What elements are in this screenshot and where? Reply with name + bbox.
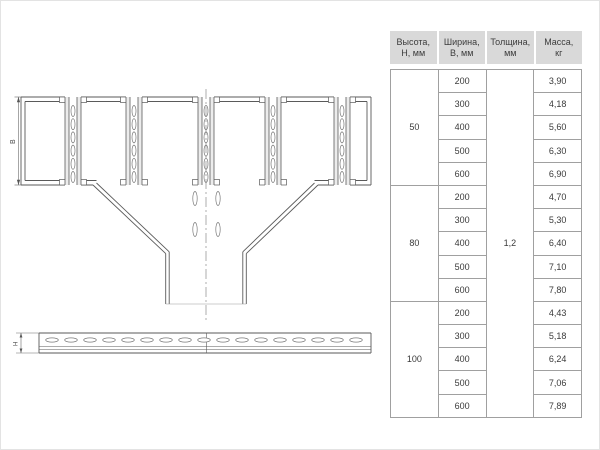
profile-slot <box>141 338 154 342</box>
profile-slot <box>103 338 116 342</box>
profile-slot <box>122 338 135 342</box>
mass-cell: 3,90 <box>534 70 582 93</box>
column-header-width: Ширина, В, мм <box>439 31 486 64</box>
header-line: В, мм <box>450 48 473 59</box>
spec-table-body: 502001,23,903004,184005,605006,306006,90… <box>390 69 582 418</box>
profile-slot <box>198 338 211 342</box>
mass-cell: 6,40 <box>534 232 582 255</box>
profile-slot <box>84 338 97 342</box>
tray-rung <box>329 97 356 186</box>
width-cell: 500 <box>438 255 486 278</box>
width-cell: 300 <box>438 209 486 232</box>
width-cell: 600 <box>438 278 486 301</box>
height-cell: 50 <box>391 70 439 186</box>
width-cell: 400 <box>438 348 486 371</box>
profile-slot <box>236 338 249 342</box>
width-cell: 200 <box>438 70 486 93</box>
header-line: Н, мм <box>401 48 425 59</box>
mass-cell: 4,18 <box>534 93 582 116</box>
profile-slot <box>255 338 268 342</box>
side-profile-slots <box>46 338 363 342</box>
profile-slot <box>293 338 306 342</box>
profile-slot <box>312 338 325 342</box>
profile-slot <box>217 338 230 342</box>
header-line: Масса, <box>544 37 573 48</box>
header-line: мм <box>504 48 516 59</box>
thickness-cell: 1,2 <box>486 70 534 418</box>
profile-slot <box>46 338 59 342</box>
mass-cell: 7,80 <box>534 278 582 301</box>
height-dimension-label: Н <box>14 342 20 346</box>
header-line: Высота, <box>397 37 430 48</box>
header-line: Толщина, <box>490 37 530 48</box>
height-cell: 100 <box>391 301 439 417</box>
mass-cell: 5,60 <box>534 116 582 139</box>
mass-cell: 5,30 <box>534 209 582 232</box>
technical-drawing: В Н <box>1 1 386 450</box>
mass-cell: 4,43 <box>534 301 582 324</box>
profile-slot <box>274 338 287 342</box>
width-cell: 200 <box>438 301 486 324</box>
header-line: кг <box>555 48 562 59</box>
profile-slot <box>65 338 78 342</box>
header-line: Ширина, <box>444 37 480 48</box>
table-row: 502001,23,90 <box>391 70 582 93</box>
width-cell: 600 <box>438 394 486 417</box>
tray-rung <box>121 97 148 186</box>
profile-slot <box>331 338 344 342</box>
width-cell: 300 <box>438 93 486 116</box>
mass-cell: 7,10 <box>534 255 582 278</box>
transition-slots <box>193 192 220 237</box>
mass-cell: 7,89 <box>534 394 582 417</box>
catalog-page: В Н Высота, Н, мм <box>0 0 600 450</box>
height-cell: 80 <box>391 185 439 301</box>
width-dimension: В <box>10 97 21 185</box>
mass-cell: 5,18 <box>534 325 582 348</box>
column-header-mass: Масса, кг <box>536 31 583 64</box>
width-cell: 300 <box>438 325 486 348</box>
height-dimension: Н <box>14 333 40 353</box>
width-cell: 600 <box>438 162 486 185</box>
mass-cell: 6,24 <box>534 348 582 371</box>
width-cell: 500 <box>438 371 486 394</box>
tray-rung <box>60 97 87 186</box>
width-cell: 500 <box>438 139 486 162</box>
width-dimension-label: В <box>10 139 17 144</box>
mass-cell: 6,30 <box>534 139 582 162</box>
width-cell: 400 <box>438 116 486 139</box>
spec-table: Высота, Н, мм Ширина, В, мм Толщина, мм … <box>390 31 582 418</box>
spec-table-header: Высота, Н, мм Ширина, В, мм Толщина, мм … <box>390 31 582 64</box>
mass-cell: 6,90 <box>534 162 582 185</box>
mass-cell: 4,70 <box>534 185 582 208</box>
profile-slot <box>160 338 173 342</box>
side-profile-view <box>39 333 371 353</box>
width-cell: 200 <box>438 185 486 208</box>
mass-cell: 7,06 <box>534 371 582 394</box>
width-cell: 400 <box>438 232 486 255</box>
profile-slot <box>350 338 363 342</box>
tray-rung <box>260 97 287 186</box>
column-header-height: Высота, Н, мм <box>390 31 437 64</box>
column-header-thickness: Толщина, мм <box>487 31 534 64</box>
profile-slot <box>179 338 192 342</box>
